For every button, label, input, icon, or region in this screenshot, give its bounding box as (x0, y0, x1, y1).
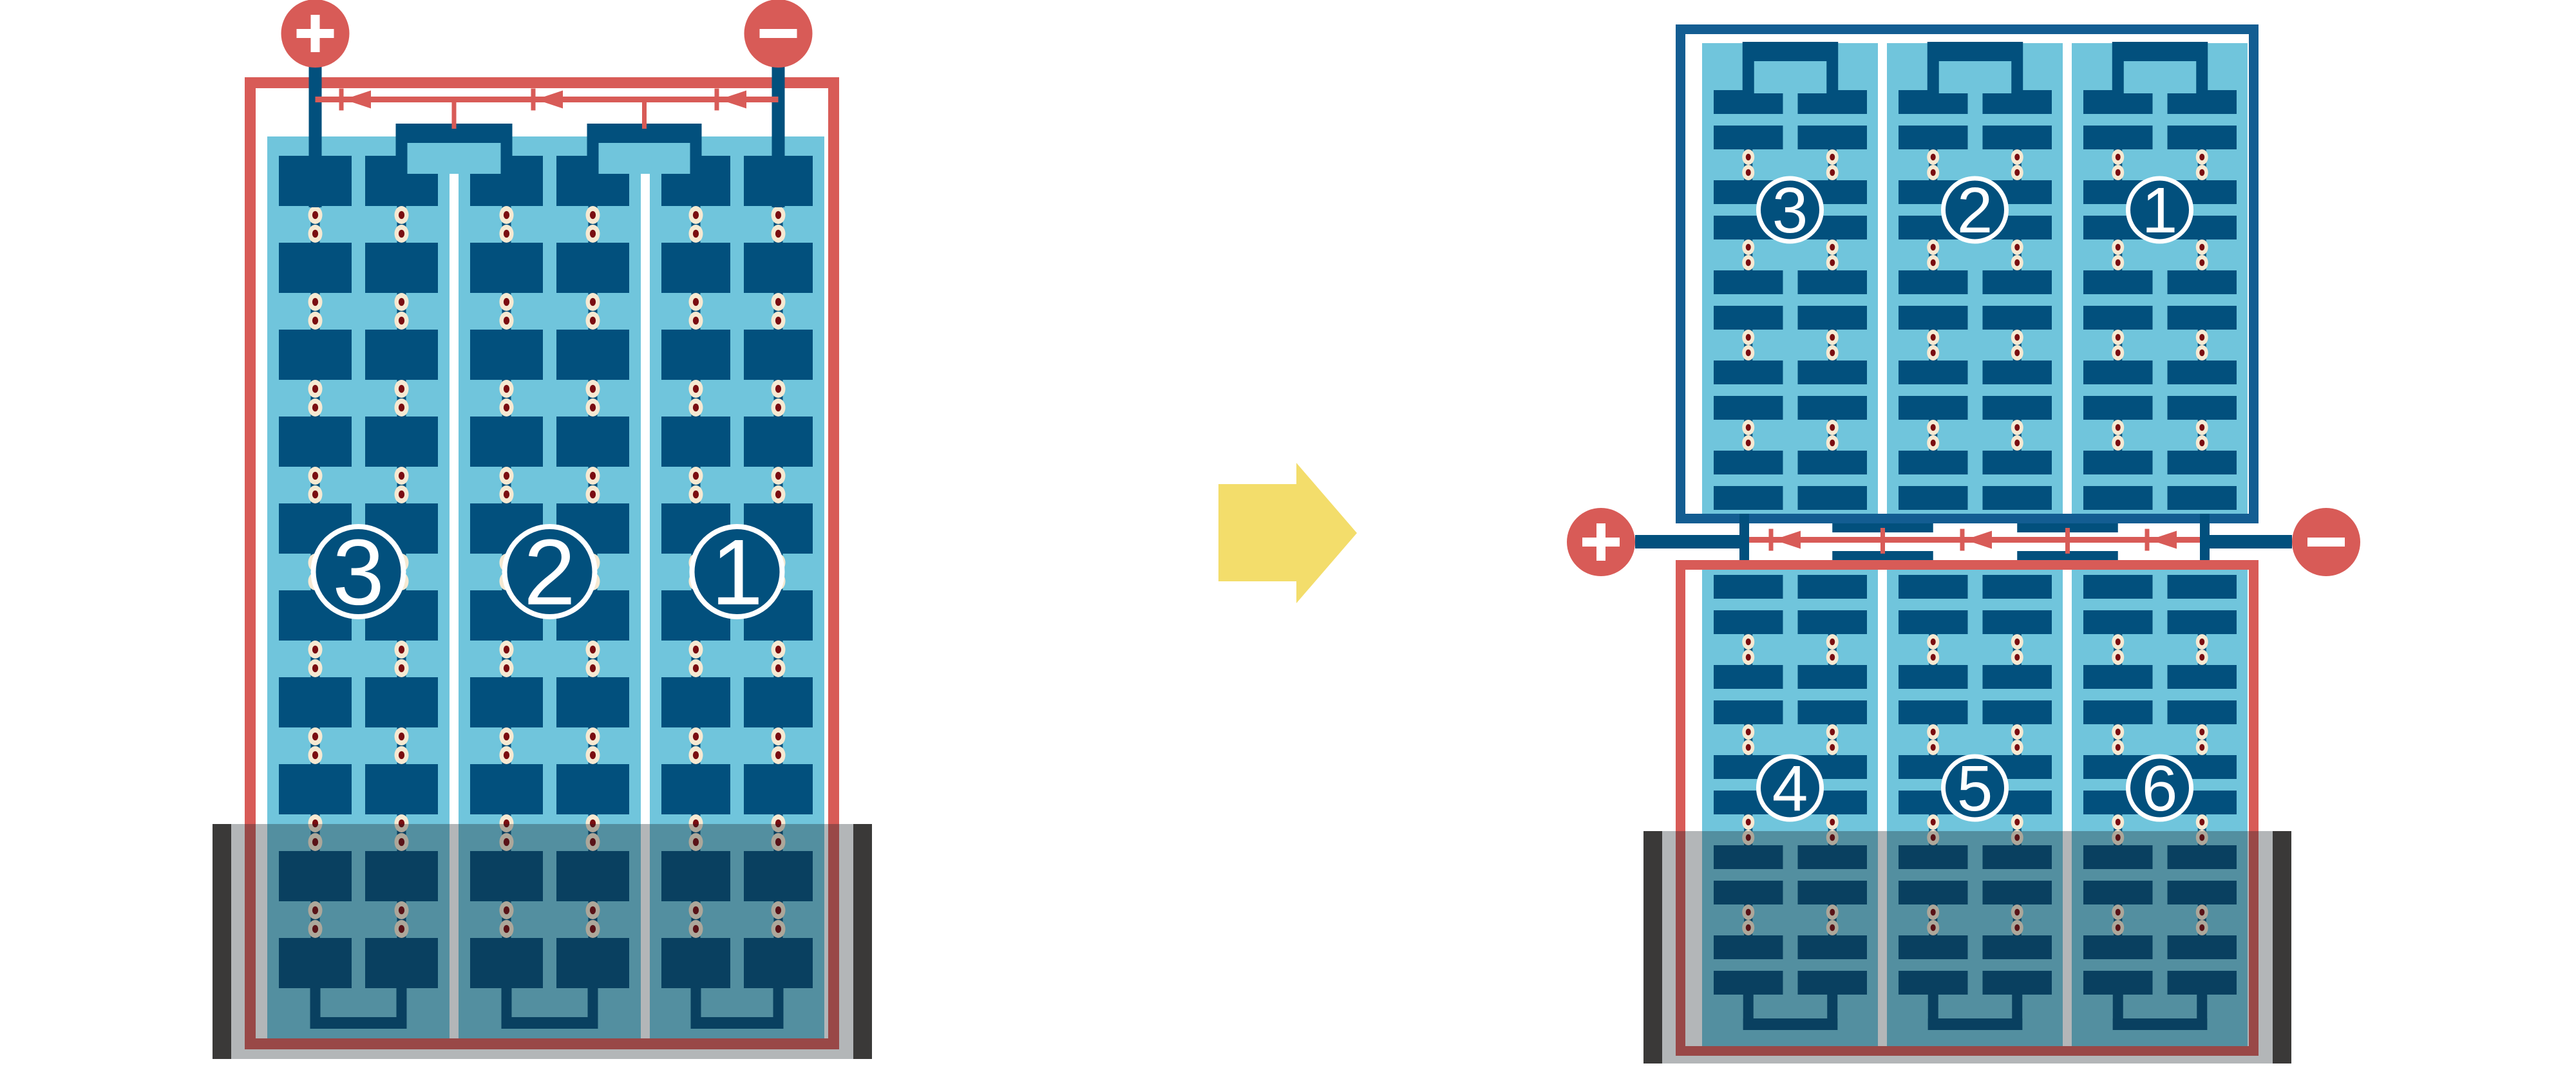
diode-cathode-bar (1960, 529, 1965, 551)
solder-dot-core (693, 664, 699, 672)
pv-cell (1798, 270, 1868, 294)
solder-dot-core (590, 646, 596, 653)
solder-dot-core (2199, 259, 2204, 267)
solder-dot-core (693, 733, 699, 740)
pv-cell (1899, 396, 1968, 420)
solder-dot-core (2014, 154, 2020, 161)
solder-dot-core (312, 404, 318, 411)
figure: 321321456 (0, 0, 2576, 1068)
pv-cell (470, 330, 543, 380)
solder-dot-core (1746, 744, 1751, 751)
string-number-label: 2 (1957, 174, 1993, 247)
pv-cell (1714, 451, 1783, 474)
pv-cell (1983, 700, 2052, 724)
solder-dot-core (693, 491, 699, 498)
solder-dot-core (590, 491, 596, 498)
solder-dot-core (2014, 639, 2020, 646)
solder-dot-core (1830, 440, 1835, 447)
solder-dot-core (775, 733, 781, 740)
diagram-canvas: 321321456 (0, 0, 2576, 1068)
shade-edge-bar (853, 824, 872, 1059)
solder-dot-core (2014, 819, 2020, 826)
pv-cell (744, 243, 813, 293)
diode-arrow (344, 91, 371, 109)
negative-symbol (760, 29, 797, 38)
solder-dot-core (399, 472, 404, 480)
negative-lead-wire (2200, 535, 2292, 548)
pv-cell (1899, 451, 1968, 474)
pv-cell (2083, 665, 2153, 689)
positive-symbol (311, 15, 320, 52)
diode-cathode-bar (531, 89, 536, 111)
pv-cell (279, 677, 352, 727)
pv-cell (1714, 90, 1783, 114)
pv-cell (1798, 306, 1868, 330)
pv-cell (1714, 665, 1783, 689)
pv-cell (556, 677, 629, 727)
solder-dot-core (1830, 819, 1835, 826)
pv-cell (1899, 700, 1968, 724)
pv-cell (279, 764, 352, 814)
solder-dot-core (2014, 169, 2020, 176)
pv-cell (279, 243, 352, 293)
pv-cell (1899, 126, 1968, 149)
solder-dot-core (2116, 819, 2121, 826)
string-number-label: 5 (1957, 753, 1993, 825)
pv-cell (1714, 575, 1783, 599)
diode-cathode-bar (339, 89, 344, 111)
pv-cell (1798, 575, 1868, 599)
pv-cell (1714, 700, 1783, 724)
solder-dot-core (1931, 424, 1936, 431)
pv-cell (279, 417, 352, 467)
solder-dot-core (399, 491, 404, 498)
solder-dot-core (2014, 334, 2020, 341)
solder-dot-core (2116, 440, 2121, 447)
solder-dot-core (1830, 334, 1835, 341)
diode-arrow (2150, 531, 2177, 549)
solder-dot-core (2116, 744, 2121, 751)
pv-cell (556, 417, 629, 467)
solder-dot-core (1746, 334, 1751, 341)
pv-cell (1983, 396, 2052, 420)
solder-dot-core (312, 317, 318, 324)
solder-dot-core (399, 733, 404, 740)
solder-dot-core (775, 298, 781, 306)
solder-dot-core (775, 664, 781, 672)
pv-cell (1798, 361, 1868, 384)
pv-cell (2083, 306, 2153, 330)
solder-dot-core (2199, 169, 2204, 176)
solder-dot-core (399, 298, 404, 306)
pv-cell (2083, 451, 2153, 474)
solder-dot-core (2116, 169, 2121, 176)
shade-edge-bar (2273, 831, 2291, 1063)
solder-dot-core (693, 404, 699, 411)
pv-cell (365, 330, 438, 380)
pv-cell (470, 243, 543, 293)
solder-dot-core (2116, 424, 2121, 431)
solder-dot-core (1931, 169, 1936, 176)
solder-dot-core (1931, 440, 1936, 447)
pv-cell (1899, 665, 1968, 689)
shade-overlay (213, 824, 872, 1059)
solder-dot-core (312, 472, 318, 480)
solder-dot-core (1830, 350, 1835, 357)
pv-cell (1714, 126, 1783, 149)
pv-cell (1899, 361, 1968, 384)
solder-dot-core (312, 751, 318, 759)
diode-arrow (536, 91, 563, 109)
solder-dot-core (2199, 154, 2204, 161)
solder-dot-core (2014, 744, 2020, 751)
solder-dot-core (399, 646, 404, 653)
string-number-label: 1 (2142, 174, 2178, 247)
diode-arrow (1774, 531, 1801, 549)
solder-dot-core (1830, 154, 1835, 161)
solder-dot-core (2014, 424, 2020, 431)
solder-dot-core (312, 733, 318, 740)
pv-cell (1714, 486, 1783, 510)
string-number-label: 6 (2142, 753, 2178, 825)
pv-cell (661, 677, 730, 727)
string-number-label: 4 (1772, 753, 1808, 825)
terminal-negative (744, 0, 813, 68)
solder-dot-core (399, 385, 404, 393)
solder-dot-core (1830, 744, 1835, 751)
solder-dot-core (2199, 819, 2204, 826)
solder-dot-core (1931, 729, 1936, 736)
positive-lead-wire (1635, 535, 1749, 548)
solder-dot-core (312, 664, 318, 672)
pv-cell (661, 243, 730, 293)
negative-symbol (2307, 538, 2345, 547)
solder-dot-core (2116, 639, 2121, 646)
solder-dot-core (775, 317, 781, 324)
pv-cell (1983, 451, 2052, 474)
solder-dot-core (693, 646, 699, 653)
string-jumper-notch (599, 143, 690, 174)
solder-dot-core (1830, 169, 1835, 176)
pv-cell (365, 417, 438, 467)
pv-cell (2168, 126, 2237, 149)
solder-dot-core (312, 491, 318, 498)
string-jumper-notch (2124, 61, 2197, 93)
solder-dot-core (590, 751, 596, 759)
solder-dot-core (504, 317, 509, 324)
pv-cell (661, 330, 730, 380)
solder-dot-core (312, 646, 318, 653)
pv-cell (470, 764, 543, 814)
solder-dot-core (1746, 244, 1751, 251)
solder-dot-core (1830, 259, 1835, 267)
diode-tap (642, 99, 647, 129)
solder-dot-core (1931, 654, 1936, 661)
solder-dot-core (2199, 440, 2204, 447)
shade-overlay (1643, 831, 2291, 1063)
solder-dot-core (399, 751, 404, 759)
solder-dot-core (1746, 729, 1751, 736)
solder-dot-core (504, 472, 509, 480)
solder-dot-core (504, 404, 509, 411)
pv-cell (1714, 610, 1783, 634)
solder-dot-core (504, 664, 509, 672)
solder-dot-core (2116, 154, 2121, 161)
pv-cell (1899, 90, 1968, 114)
solder-dot-core (312, 385, 318, 393)
solder-dot-core (693, 472, 699, 480)
pv-cell (1899, 270, 1968, 294)
solder-dot-core (693, 211, 699, 219)
solder-dot-core (1746, 654, 1751, 661)
pv-cell (1983, 486, 2052, 510)
diode-cathode-bar (1769, 529, 1774, 551)
solder-dot-core (590, 733, 596, 740)
solder-dot-core (399, 230, 404, 238)
solder-dot-core (1830, 639, 1835, 646)
solder-dot-core (2014, 259, 2020, 267)
pv-cell (1983, 610, 2052, 634)
solder-dot-core (2199, 424, 2204, 431)
solder-dot-core (2199, 334, 2204, 341)
solder-dot-core (1830, 654, 1835, 661)
pv-cell (1983, 126, 2052, 149)
solder-dot-core (1830, 729, 1835, 736)
string-jumper-notch (1754, 61, 1827, 93)
pv-cell (2168, 665, 2237, 689)
solder-dot-core (1746, 154, 1751, 161)
right-modules: 321456 (1567, 30, 2360, 1064)
pv-cell (2083, 486, 2153, 510)
pv-cell (744, 764, 813, 814)
solder-dot-core (775, 751, 781, 759)
positive-symbol (1596, 523, 1605, 561)
solder-dot-core (2116, 244, 2121, 251)
pv-cell (1983, 270, 2052, 294)
pv-cell (2083, 610, 2153, 634)
pv-cell (1798, 126, 1868, 149)
diode-tap (1880, 528, 1885, 554)
solder-dot-core (399, 317, 404, 324)
solder-dot-core (590, 298, 596, 306)
pv-cell (1983, 665, 2052, 689)
solder-dot-core (312, 298, 318, 306)
pv-cell (2083, 361, 2153, 384)
diode-arrow (719, 91, 746, 109)
solder-dot-core (590, 385, 596, 393)
diode-arrow (1965, 531, 1992, 549)
solder-dot-core (590, 664, 596, 672)
solder-dot-core (1746, 169, 1751, 176)
pv-cell (470, 417, 543, 467)
solder-dot-core (1931, 154, 1936, 161)
solder-dot-core (1746, 350, 1751, 357)
solder-dot-core (1830, 424, 1835, 431)
pv-cell (1714, 306, 1783, 330)
pv-cell (1798, 665, 1868, 689)
pv-cell (2168, 361, 2237, 384)
pv-cell (1899, 575, 1968, 599)
solder-dot-core (504, 733, 509, 740)
pv-cell (556, 764, 629, 814)
solder-dot-core (1746, 424, 1751, 431)
pv-cell (1983, 90, 2052, 114)
solder-dot-core (1931, 259, 1936, 267)
solder-dot-core (504, 385, 509, 393)
solder-dot-core (590, 230, 596, 238)
pv-cell (1983, 575, 2052, 599)
pv-cell (1899, 486, 1968, 510)
solder-dot-core (2116, 729, 2121, 736)
terminal-negative (2292, 508, 2360, 576)
pv-cell (365, 243, 438, 293)
solder-dot-core (1931, 819, 1936, 826)
solder-dot-core (2014, 654, 2020, 661)
solder-dot-core (1931, 334, 1936, 341)
solder-dot-core (2116, 350, 2121, 357)
pv-cell (365, 764, 438, 814)
pv-cell (2168, 451, 2237, 474)
solder-dot-core (1931, 744, 1936, 751)
solder-dot-core (1830, 244, 1835, 251)
solder-dot-core (312, 230, 318, 238)
solder-dot-core (312, 211, 318, 219)
pv-cell (556, 330, 629, 380)
solder-dot-core (1931, 639, 1936, 646)
solder-dot-core (693, 230, 699, 238)
solder-dot-core (775, 404, 781, 411)
pv-cell (2168, 396, 2237, 420)
solder-dot-core (693, 751, 699, 759)
solder-dot-core (2116, 654, 2121, 661)
solder-dot-core (1931, 244, 1936, 251)
solder-dot-core (775, 385, 781, 393)
pv-cell (2083, 575, 2153, 599)
pv-cell (1798, 700, 1868, 724)
terminal-positive (281, 0, 350, 68)
pv-cell (1714, 361, 1783, 384)
pv-cell (1798, 90, 1868, 114)
shade-region (213, 824, 872, 1059)
solder-dot-core (399, 211, 404, 219)
solder-dot-core (504, 751, 509, 759)
pv-cell (2168, 575, 2237, 599)
pv-cell (2083, 396, 2153, 420)
solder-dot-core (2199, 654, 2204, 661)
solder-dot-core (775, 211, 781, 219)
pv-cell (661, 417, 730, 467)
solder-dot-core (590, 317, 596, 324)
pv-cell (1983, 306, 2052, 330)
pv-cell (279, 330, 352, 380)
pv-cell (2083, 270, 2153, 294)
solder-dot-core (504, 646, 509, 653)
left-module: 321 (213, 0, 872, 1059)
solder-dot-core (2199, 244, 2204, 251)
string-jumper-notch (1939, 61, 2012, 93)
pv-cell (1983, 361, 2052, 384)
string-number-label: 3 (332, 520, 384, 624)
pv-cell (2168, 700, 2237, 724)
pv-cell (1798, 451, 1868, 474)
solder-dot-core (590, 472, 596, 480)
solder-dot-core (399, 404, 404, 411)
pv-cell (2083, 126, 2153, 149)
pv-cell (744, 330, 813, 380)
shade-edge-bar (1643, 831, 1662, 1063)
solder-dot-core (2116, 259, 2121, 267)
pv-cell (2168, 306, 2237, 330)
solder-dot-core (775, 646, 781, 653)
solder-dot-core (2199, 744, 2204, 751)
pv-cell (1798, 486, 1868, 510)
pv-cell (2083, 90, 2153, 114)
solder-dot-core (2014, 244, 2020, 251)
pv-cell (744, 417, 813, 467)
solder-dot-core (504, 491, 509, 498)
diode-tap (2065, 528, 2070, 554)
pv-cell (2083, 700, 2153, 724)
right-top-module: 321 (1681, 30, 2254, 519)
pv-cell (2168, 610, 2237, 634)
shade-region (1643, 831, 2291, 1063)
solder-dot-core (590, 211, 596, 219)
solder-dot-core (775, 230, 781, 238)
pv-cell (470, 677, 543, 727)
pv-cell (365, 677, 438, 727)
solder-dot-core (775, 491, 781, 498)
shade-edge-bar (213, 824, 231, 1059)
pv-cell (1798, 396, 1868, 420)
diode-cathode-bar (715, 89, 719, 111)
string-number-label: 3 (1772, 174, 1808, 247)
solder-dot-core (693, 298, 699, 306)
solder-dot-core (2199, 639, 2204, 646)
solder-dot-core (693, 385, 699, 393)
pv-cell (1714, 396, 1783, 420)
solder-dot-core (590, 404, 596, 411)
diode-tap (452, 99, 457, 129)
pv-cell (2168, 90, 2237, 114)
string-number-label: 2 (524, 520, 576, 624)
string-number-label: 1 (711, 520, 763, 624)
string-jumper-notch (408, 143, 501, 174)
solder-dot-core (775, 472, 781, 480)
solder-dot-core (693, 317, 699, 324)
solder-dot-core (2199, 350, 2204, 357)
pv-cell (2168, 486, 2237, 510)
pv-cell (556, 243, 629, 293)
pv-cell (1899, 610, 1968, 634)
pv-cell (2168, 270, 2237, 294)
pv-cell (1899, 306, 1968, 330)
terminal-positive (1567, 508, 1635, 576)
solder-dot-core (504, 211, 509, 219)
pv-cell (661, 764, 730, 814)
solder-dot-core (1931, 350, 1936, 357)
solder-dot-core (2199, 729, 2204, 736)
pv-cell (1798, 610, 1868, 634)
solder-dot-core (1746, 440, 1751, 447)
solder-dot-core (2014, 729, 2020, 736)
solder-dot-core (1746, 819, 1751, 826)
pv-cell (1714, 270, 1783, 294)
solder-dot-core (1746, 639, 1751, 646)
pv-cell (744, 677, 813, 727)
transition-arrow (1218, 463, 1357, 603)
solder-dot-core (2116, 334, 2121, 341)
solder-dot-core (504, 230, 509, 238)
